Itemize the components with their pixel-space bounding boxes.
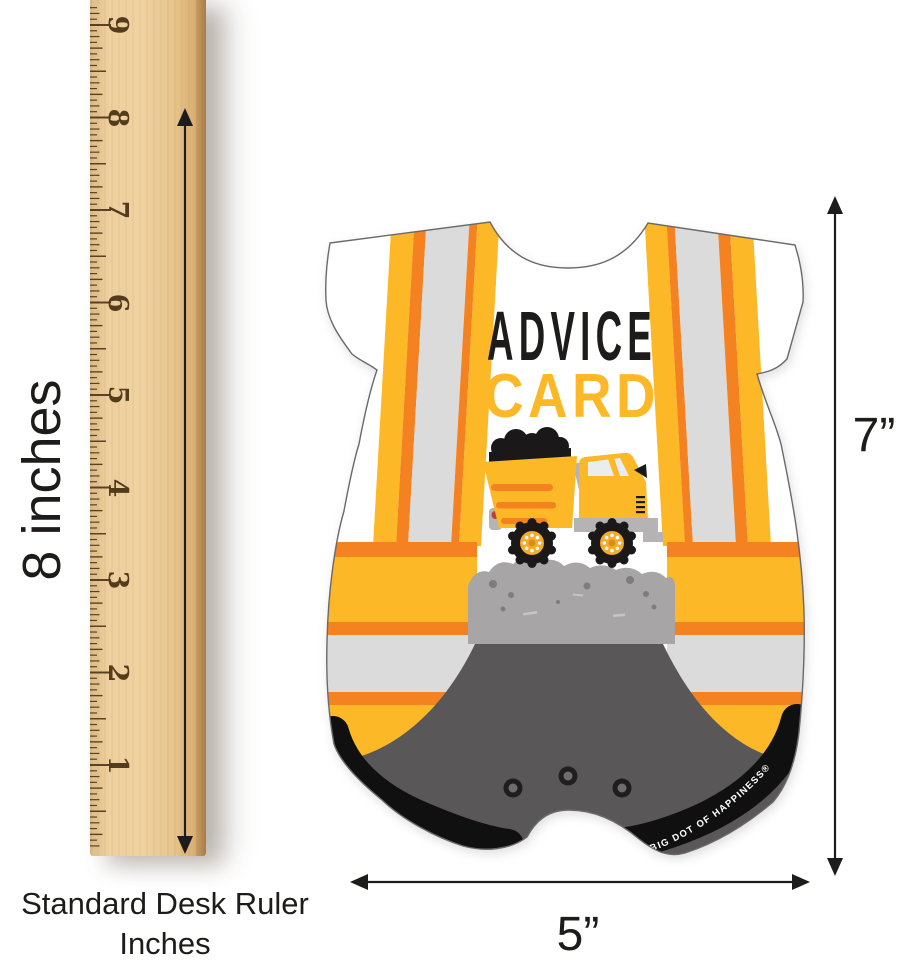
- vest-right-strap: [644, 212, 771, 546]
- ruler-number: 9: [103, 12, 133, 38]
- card-height-label: 7”: [840, 408, 908, 462]
- ruler-number: 6: [103, 290, 133, 316]
- caption-inches: Inches: [0, 926, 330, 962]
- ruler-height-label: 8 inches: [11, 379, 73, 580]
- caption-standard-desk-ruler: Standard Desk Ruler: [0, 886, 330, 922]
- ruler-number: 3: [103, 567, 133, 593]
- ruler-number: 7: [103, 197, 133, 223]
- product-dimension-diagram: 987654321 8 inches Standard Desk Ruler I…: [0, 0, 908, 970]
- truck-bed: [483, 456, 577, 528]
- ruler-number: 5: [103, 382, 133, 408]
- card-height-arrow-icon: [821, 196, 849, 876]
- ruler-number: 2: [103, 660, 133, 686]
- advice-card-bodysuit: ADVICE CARD ®BIG DOT OF HAPPINESS®: [325, 212, 805, 872]
- card-title: CARD: [484, 362, 660, 431]
- card-width-label: 5”: [546, 908, 610, 960]
- ruler-number: 1: [103, 752, 133, 778]
- ruler-number: 8: [103, 105, 133, 131]
- ruler-height-arrow-icon: [171, 108, 199, 854]
- ruler-number: 4: [103, 475, 133, 501]
- card-width-arrow-icon: [350, 868, 810, 896]
- vest-left-strap: [373, 212, 500, 546]
